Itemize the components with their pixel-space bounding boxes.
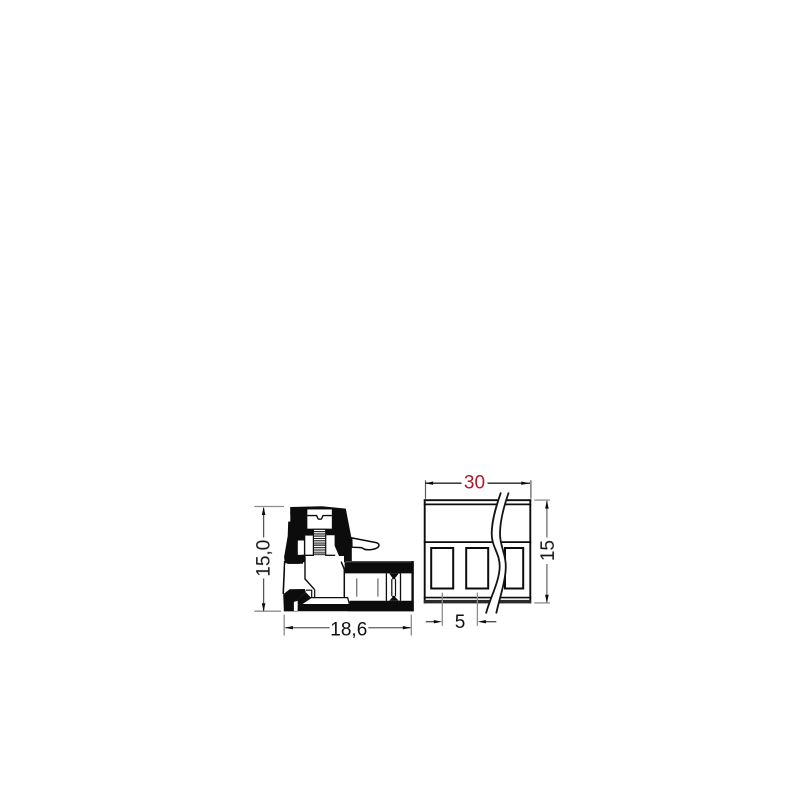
- svg-text:15: 15: [538, 540, 559, 561]
- svg-text:30: 30: [464, 472, 485, 493]
- svg-text:15,0: 15,0: [254, 540, 275, 577]
- svg-text:5: 5: [455, 612, 466, 633]
- svg-text:18,6: 18,6: [330, 619, 367, 640]
